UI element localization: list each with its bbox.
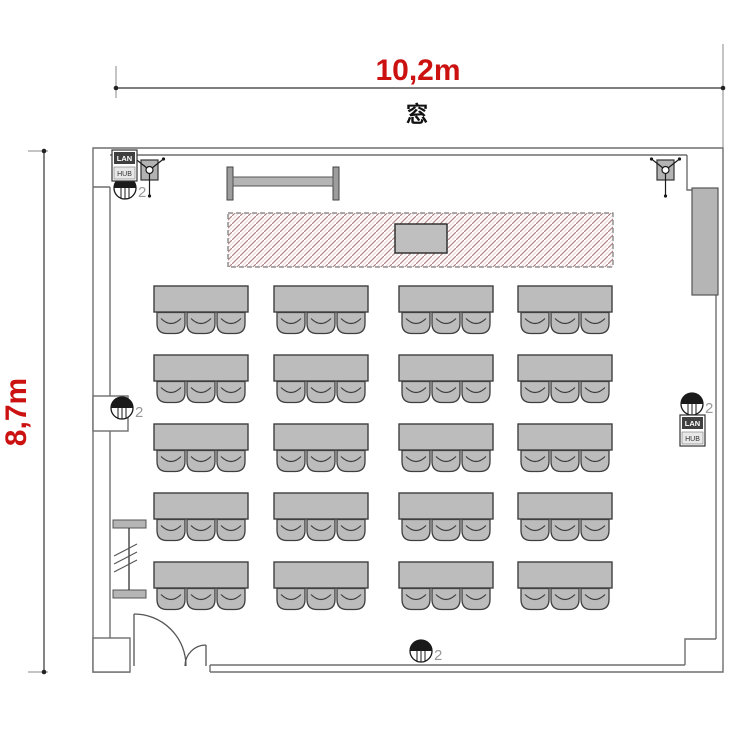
outlet-count-label: 2 (434, 647, 442, 664)
table (518, 424, 612, 450)
speakers-layer (134, 157, 681, 197)
table (274, 493, 368, 519)
outlet-count-label: 2 (138, 184, 146, 201)
table-with-chairs (274, 424, 368, 472)
table-with-chairs (399, 493, 493, 541)
table (154, 493, 248, 519)
table (399, 424, 493, 450)
table-with-chairs (274, 355, 368, 403)
table-with-chairs (154, 493, 248, 541)
whiteboard (227, 167, 339, 200)
podium-table (395, 224, 447, 253)
table (399, 562, 493, 588)
table-with-chairs (399, 355, 493, 403)
whiteboard-bracket-right (333, 167, 339, 200)
table-with-chairs (154, 424, 248, 472)
speaker-prong-dot (678, 157, 681, 160)
table (154, 286, 248, 312)
table (154, 562, 248, 588)
table-with-chairs (518, 286, 612, 334)
table (274, 286, 368, 312)
table-with-chairs (399, 424, 493, 472)
table (399, 355, 493, 381)
table-with-chairs (154, 562, 248, 610)
lan-port-sublabel: HUB (685, 436, 700, 443)
speaker-hub (146, 167, 153, 174)
dimension-width: 10,2m (114, 44, 726, 148)
table (399, 493, 493, 519)
wall-corner-step-top-right (687, 155, 716, 190)
floor-plan-canvas: 10,2m 8,7m 窓 (0, 0, 750, 750)
table (399, 286, 493, 312)
height-dimension-label: 8,7m (0, 378, 33, 446)
whiteboard-bracket-left (227, 167, 233, 200)
table-with-chairs (518, 493, 612, 541)
partition-bracket-bottom (113, 590, 146, 598)
table (518, 286, 612, 312)
outlet-symbol: 2 (410, 640, 442, 664)
stage-area (228, 213, 613, 267)
outlet-count-label: 2 (705, 400, 713, 417)
table (518, 493, 612, 519)
table-with-chairs (154, 286, 248, 334)
speaker-symbol (650, 157, 681, 197)
dimension-end-dot (42, 149, 47, 154)
speaker-prong-dot (162, 157, 165, 160)
wall-corner-step-bottom-right (685, 639, 716, 665)
partition-symbol (113, 520, 146, 598)
lan-port: LANHUB (680, 415, 705, 446)
table-with-chairs (274, 562, 368, 610)
outlet-symbol: 2 (681, 393, 713, 417)
table (518, 355, 612, 381)
table-with-chairs (518, 562, 612, 610)
dimension-end-dot (114, 86, 119, 91)
lan-port-label: LAN (117, 154, 132, 163)
wall-cabinet (692, 188, 718, 295)
outlet-count-label: 2 (135, 404, 143, 421)
speaker-prong-dot (148, 194, 151, 197)
table (154, 355, 248, 381)
lan-port-label: LAN (685, 419, 700, 428)
floor-plan-svg: 10,2m 8,7m 窓 (0, 0, 750, 750)
partition-bracket-top (113, 520, 146, 528)
speaker-prong-dot (664, 194, 667, 197)
dimension-height: 8,7m (0, 149, 48, 675)
table-with-chairs (274, 286, 368, 334)
tables-layer (154, 286, 612, 610)
wall-pillar-bottom-left (93, 638, 130, 672)
outlet-symbol: 2 (111, 397, 143, 421)
table (274, 424, 368, 450)
whiteboard-board (233, 177, 333, 186)
speaker-hub (662, 167, 669, 174)
table (518, 562, 612, 588)
table-with-chairs (399, 562, 493, 610)
door-swing-arc-small (185, 645, 206, 666)
door-swing-arc-main (134, 614, 186, 666)
table-with-chairs (154, 355, 248, 403)
dimension-end-dot (721, 86, 726, 91)
width-dimension-label: 10,2m (375, 54, 460, 87)
speaker-prong-dot (650, 157, 653, 160)
table-with-chairs (274, 493, 368, 541)
dimension-end-dot (42, 670, 47, 675)
window-label: 窓 (406, 102, 428, 127)
table-with-chairs (399, 286, 493, 334)
lan-port-sublabel: HUB (117, 171, 132, 178)
entrance-door (134, 614, 206, 666)
table (154, 424, 248, 450)
table (274, 562, 368, 588)
table-with-chairs (518, 355, 612, 403)
table (274, 355, 368, 381)
table-with-chairs (518, 424, 612, 472)
lan-port: LANHUB (112, 150, 137, 181)
